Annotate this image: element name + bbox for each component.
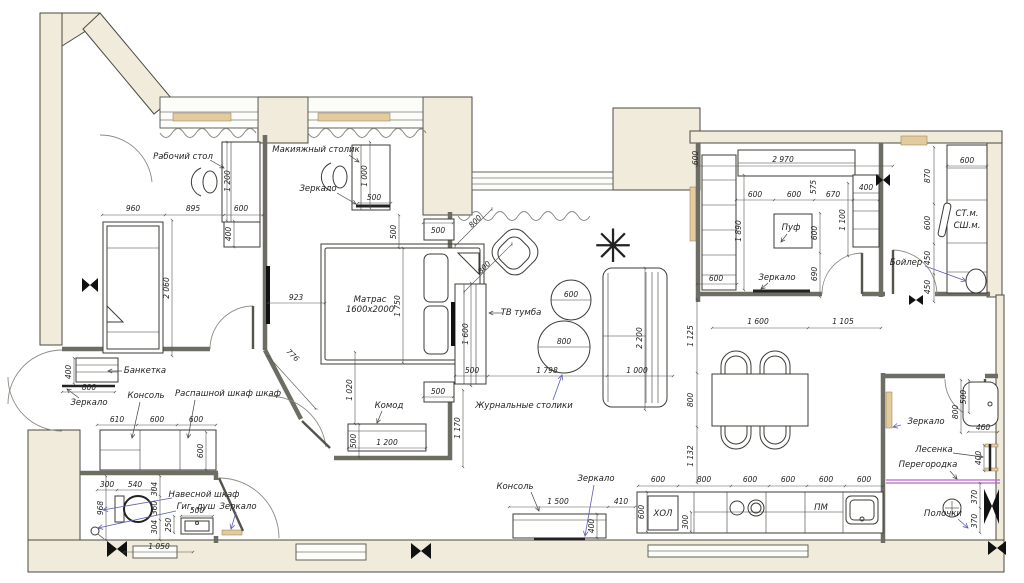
dim-label: 500 [431,387,446,396]
dim-label: 870 [923,169,932,184]
plant-icon: ✳ [594,219,633,273]
dim-label: 776 [284,347,301,364]
toilet [115,496,152,522]
dim-label: 690 [810,267,819,282]
komod-label: Комод [375,401,404,411]
dim-label: 600 [781,475,796,484]
annotation-labels: Рабочий стол Макияжный столик Зеркало Ма… [67,145,983,536]
dim-label: 800 [686,393,695,408]
dim-label: 500 [959,390,968,405]
hygienic-shower-label: Гиг. душ [177,502,216,512]
dim-label: 600 [748,190,763,199]
dim-label: 540 [128,480,143,489]
section-marker [82,278,98,292]
dining-table [712,374,808,426]
kitchen-sink [846,496,878,524]
boiler [966,269,986,293]
dim-label: 1 020 [345,379,354,401]
console-label: Консоль [127,391,164,401]
desk-chair [191,168,217,196]
bath-sink [963,382,998,426]
dim-label: 600 [651,475,666,484]
dim-label: 1 200 [376,438,398,447]
console-label: Консоль [496,482,533,492]
drying-machine-label: СШ.м. [954,221,981,231]
tv-bedroom [266,266,270,324]
dim-label: 400 [974,451,983,466]
washing-machine-label: СТ.м. [956,209,979,219]
dim-label: 895 [186,204,201,213]
fridge-label: ХОЛ [653,509,674,519]
shower-partition [886,480,1000,483]
dim-label: 1 000 [626,366,648,375]
dim-label: 670 [826,190,841,199]
closet-door-arc [822,253,862,294]
floor-plan-drawing: ✳ [0,0,1024,583]
dim-label: 800 [557,337,572,346]
dim-label: 1 050 [148,542,170,551]
entrance-door-arc [8,377,62,431]
ladder-label: Лесенка [914,445,952,455]
mirror-label: Зеркало [758,273,795,283]
dim-label: 600 [787,190,802,199]
bed-single [103,222,163,353]
dim-label: 600 [196,444,205,459]
dim-label: 610 [110,415,125,424]
dim-label: 600 [819,475,834,484]
dim-label: 300 [100,480,115,489]
dim-label: 1 105 [832,317,854,326]
dim-label: 800 [697,475,712,484]
mattress-size-label: 1600х2000 [346,305,394,315]
dim-label: 600 [709,274,724,283]
dim-label: 1 890 [734,220,743,242]
closet-mirror-strip [690,187,696,241]
wall-cabinet-label: Навесной шкаф [169,490,240,500]
dim-label: 500 [349,434,358,449]
partition-label: Перегородка [899,460,958,470]
coffee-table-small [551,280,591,320]
floor-plan: ✳ [0,0,1024,583]
boiler-label: Бойлер [890,258,923,268]
dim-label: 410 [614,497,629,506]
dim-label: 1 000 [360,165,369,187]
dim-label: 1 600 [461,323,470,345]
wc-sink [181,518,213,534]
dim-label: 600 [564,290,579,299]
dim-label: 600 [234,204,249,213]
mirror-label: Зеркало [70,398,107,408]
dim-label: 1 750 [393,295,402,317]
pouf-label: Пуф [782,223,801,233]
dim-label: 460 [976,423,991,432]
dim-label: 600 [691,151,700,166]
dim-label: 2 970 [772,155,794,164]
dim-label: 300 [681,515,690,530]
dim-label: 370 [970,490,979,505]
dim-label: 600 [810,226,819,241]
dim-label: 575 [809,180,818,195]
dim-label: 500 [431,226,446,235]
dim-label: 304 [150,482,159,497]
dim-label: 600 [637,505,646,520]
dim-label: 923 [289,293,304,302]
tv-stand-label: ТВ тумба [501,308,542,318]
mattress-label: Матрас [354,295,387,305]
dim-label: 500 [389,225,398,240]
door-arc [210,306,253,349]
tv-living [451,302,455,346]
dim-label: 1 170 [453,417,462,439]
dim-label: 400 [224,227,233,242]
coffee-tables-label: Журнальные столики [474,401,573,411]
wardrobe-label: Распашной шкаф шкаф [175,389,281,399]
dim-label: 500 [367,193,382,202]
curtain [160,129,256,138]
desk-label: Рабочий стол [153,152,213,162]
mirror-label: Зеркало [299,184,336,194]
dim-label: 960 [126,204,141,213]
banquette [76,358,118,382]
curtain [308,129,426,138]
section-marker [909,295,923,305]
dim-label: 250 [164,518,173,533]
mirror-label: Зеркало [907,417,944,427]
dim-label: 2 060 [162,277,171,299]
dim-label: 600 [857,475,872,484]
dim-label: 1 125 [686,325,695,347]
vent-sill [901,136,927,145]
dim-label: 2 200 [635,327,644,349]
dim-label: 800 [82,383,97,392]
dim-label: 500 [465,366,480,375]
mirror-label: Зеркало [577,474,614,484]
dim-label: 400 [64,365,73,380]
dim-label: 600 [923,216,932,231]
banquette-label: Банкетка [124,366,166,376]
dim-label: 600 [960,156,975,165]
dim-label: 450 [923,251,932,266]
entrance-door-arc [8,350,62,404]
dim-label: 1 100 [838,209,847,231]
mirror-label: Зеркало [219,502,256,512]
makeup-table-label: Макияжный столик [272,145,360,155]
dim-label: 1 200 [223,170,232,192]
dim-label: 1 132 [686,445,695,467]
dim-label: 304 [150,520,159,535]
bath-mirror-strip [886,392,892,428]
window-sill [173,113,231,121]
door-arc [268,396,326,447]
dim-label: 1 798 [536,366,558,375]
dim-label: 400 [859,183,874,192]
dim-label: 968 [96,501,105,516]
armchair [487,224,544,281]
dim-label: 600 [743,475,758,484]
dim-label: 1 500 [547,497,569,506]
dim-label: 450 [923,280,932,295]
dim-label: 600 [150,415,165,424]
hygienic-shower [91,527,104,539]
dim-label: 1 600 [747,317,769,326]
wc-mirror-strip [222,530,242,535]
dim-label: 370 [970,514,979,529]
dim-label: 800 [951,405,960,420]
window-sill [318,113,390,121]
dim-label: 360 [150,501,159,516]
dim-label: 400 [587,519,596,534]
dishwasher-label: ПМ [814,503,828,513]
shelves-label: Полочки [924,509,962,519]
door-arc [100,135,152,182]
